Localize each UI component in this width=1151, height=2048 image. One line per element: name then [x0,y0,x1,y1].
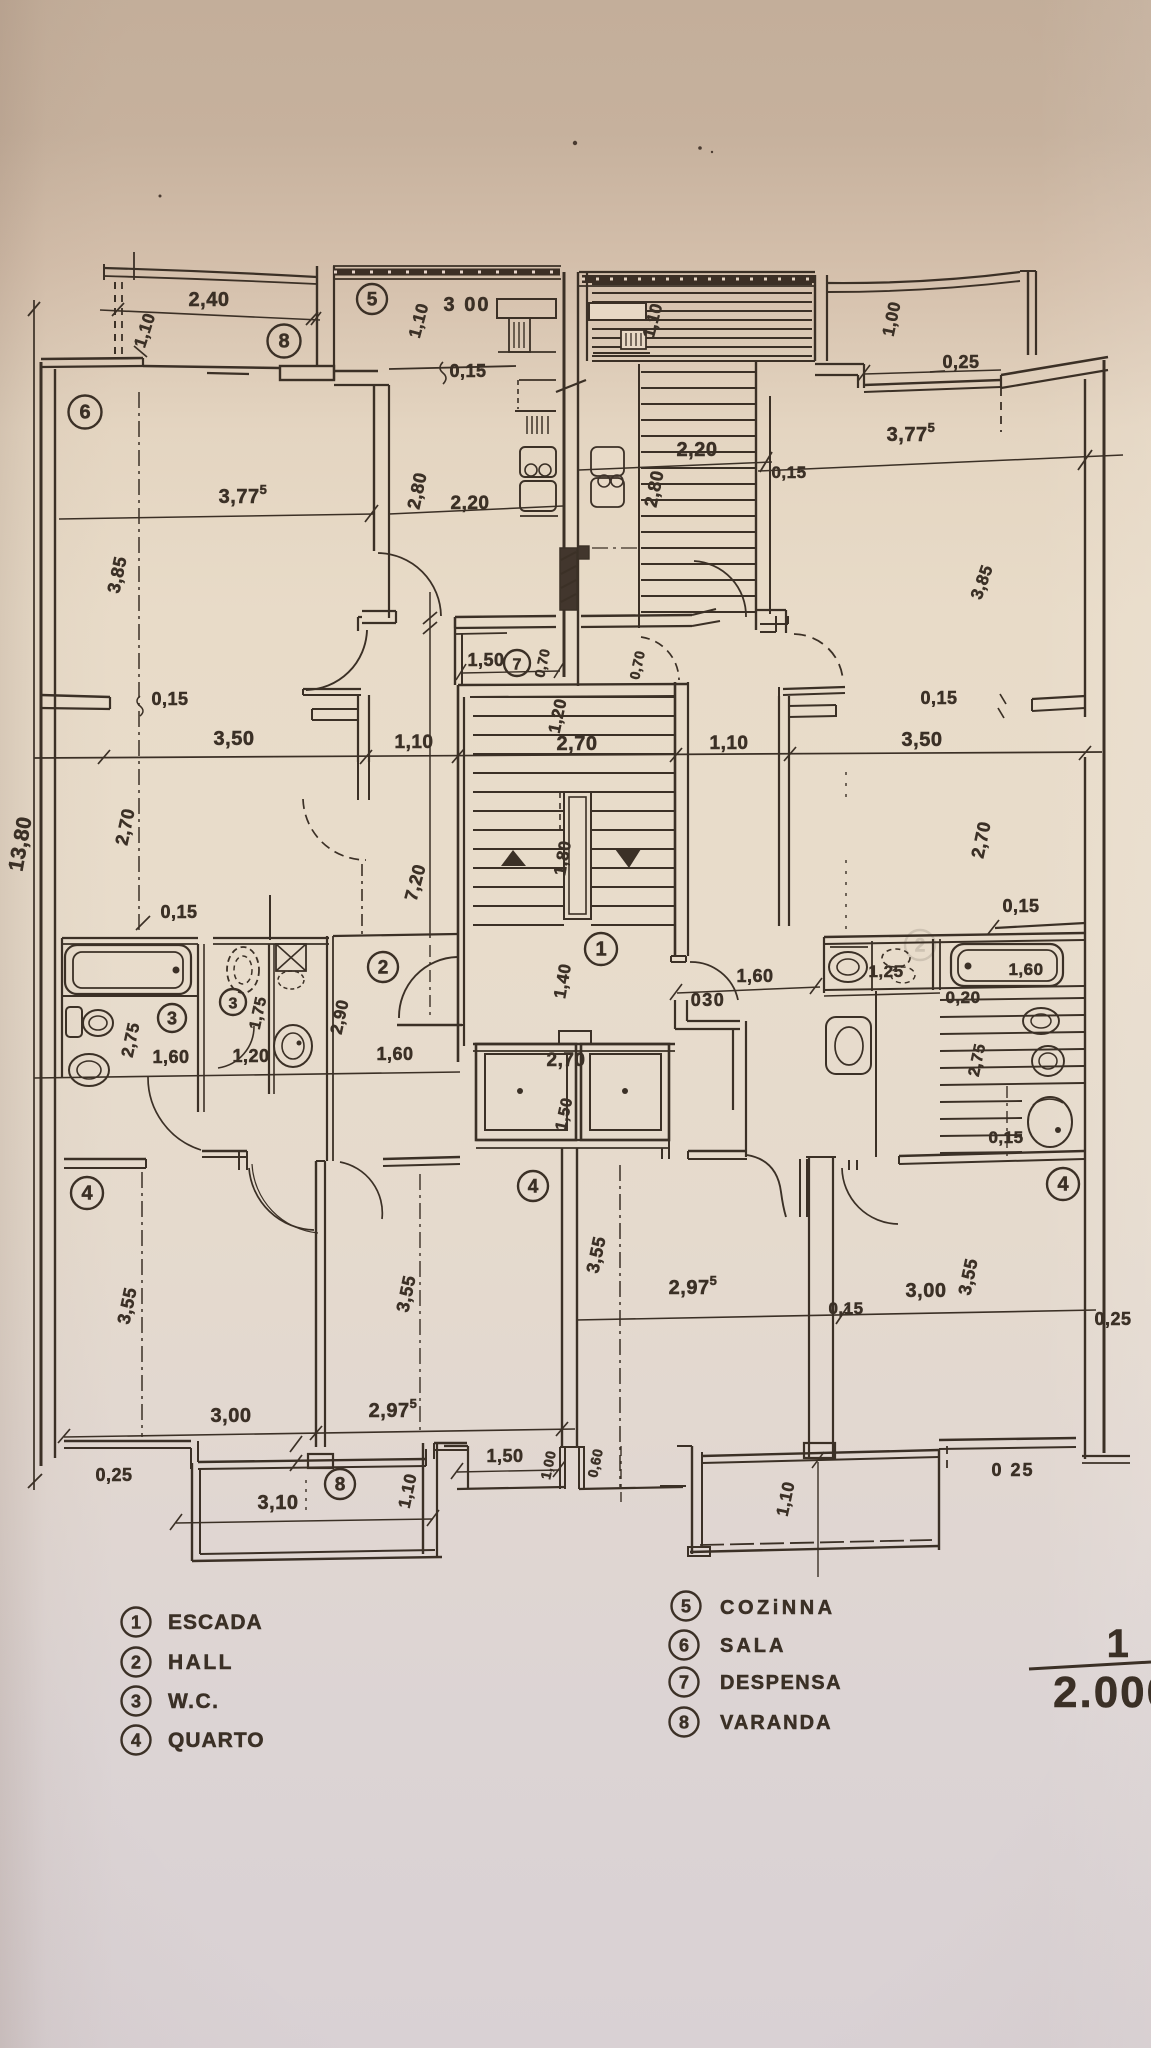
svg-text:1: 1 [131,1613,141,1633]
svg-text:8: 8 [679,1713,689,1733]
svg-text:4: 4 [528,1177,539,1198]
svg-text:1,60: 1,60 [736,966,773,986]
svg-text:1,25: 1,25 [868,962,903,981]
svg-text:5: 5 [367,290,378,311]
svg-text:0,25: 0,25 [942,352,979,372]
svg-text:030: 030 [691,990,726,1010]
svg-text:W.C.: W.C. [168,1690,220,1713]
svg-text:3,10: 3,10 [258,1492,299,1514]
svg-text:2,20: 2,20 [677,439,718,461]
svg-text:3,00: 3,00 [906,1280,947,1302]
svg-text:7: 7 [679,1673,689,1693]
svg-text:0,25: 0,25 [95,1465,132,1485]
svg-text:4: 4 [1057,1174,1069,1196]
svg-text:VARANDA: VARANDA [720,1712,833,1734]
svg-text:1,60: 1,60 [1008,960,1043,979]
svg-text:1,60: 1,60 [376,1044,413,1064]
svg-text:1: 1 [1107,1622,1130,1666]
svg-text:0,15: 0,15 [828,1299,863,1318]
svg-text:0 25: 0 25 [991,1460,1034,1480]
svg-text:0,20: 0,20 [945,988,980,1007]
svg-text:0,15: 0,15 [160,902,197,922]
svg-text:3,50: 3,50 [902,729,943,751]
svg-text:SALA: SALA [720,1635,786,1657]
svg-text:0,15: 0,15 [771,463,806,482]
svg-text:1,20: 1,20 [232,1046,269,1066]
svg-text:2: 2 [915,936,926,957]
svg-text:0,15: 0,15 [1002,896,1039,916]
svg-text:3,50: 3,50 [214,728,255,750]
svg-text:5: 5 [681,1597,691,1617]
svg-text:DESPENSA: DESPENSA [720,1672,842,1694]
svg-text:0,15: 0,15 [449,361,486,381]
svg-text:1,60: 1,60 [152,1047,189,1067]
svg-text:6: 6 [79,402,90,424]
svg-text:1: 1 [595,939,606,961]
svg-text:2,40: 2,40 [189,289,230,311]
svg-text:COZiNNA: COZiNNA [720,1597,836,1619]
svg-text:3: 3 [167,1009,177,1029]
svg-text:0,15: 0,15 [920,688,957,708]
svg-text:0,15: 0,15 [151,689,188,709]
svg-text:3: 3 [229,996,238,1013]
svg-text:3: 3 [131,1692,141,1712]
svg-text:8: 8 [335,1475,346,1496]
svg-text:ESCADA: ESCADA [168,1611,263,1634]
svg-text:HALL: HALL [168,1651,234,1674]
svg-text:1,10: 1,10 [710,733,749,754]
svg-text:1,10: 1,10 [395,732,434,753]
svg-text:2,70: 2,70 [557,733,598,755]
svg-text:3 00: 3 00 [444,294,491,316]
svg-text:4: 4 [81,1183,93,1205]
svg-text:0,15: 0,15 [988,1128,1023,1147]
svg-text:2.000: 2.000 [1053,1668,1151,1717]
svg-text:4: 4 [131,1731,141,1751]
svg-text:1,50: 1,50 [486,1446,523,1466]
svg-text:2: 2 [378,958,389,979]
svg-text:QUARTO: QUARTO [168,1729,265,1752]
svg-text:3,00: 3,00 [211,1405,252,1427]
svg-text:0,25: 0,25 [1094,1309,1131,1329]
svg-text:2: 2 [131,1653,141,1673]
svg-text:7: 7 [513,657,522,674]
svg-text:1,50: 1,50 [467,650,504,670]
svg-text:6: 6 [679,1636,689,1656]
svg-text:8: 8 [278,331,289,353]
